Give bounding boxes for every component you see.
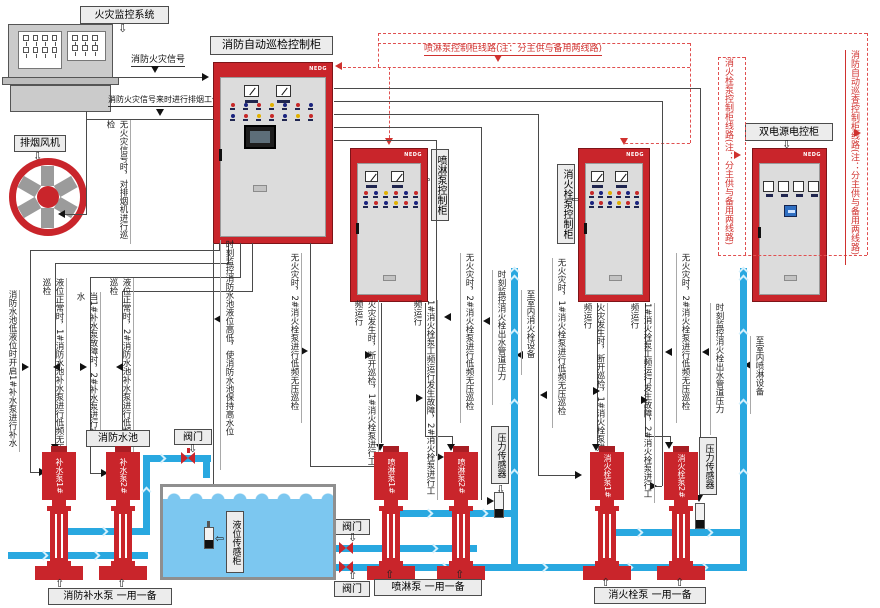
inspection-line-note: 消防自动巡查控制柜线路(注：分主供与备用两线路) (845, 50, 860, 265)
pressure-sensor-icon (494, 492, 504, 518)
pump-spray-1: 喷淋泵1# (367, 446, 415, 580)
hydrant-group-label: 消火栓泵 一用一备 (594, 587, 706, 604)
up-block-arrow-icon: ⇧ (348, 570, 357, 581)
wire (30, 250, 220, 251)
power-dashed-line (625, 143, 690, 144)
door-handle (758, 227, 761, 238)
cabinet-inspection: NEDG (213, 62, 333, 244)
wire (55, 263, 229, 264)
level-sensor-icon (204, 527, 214, 549)
monitor-unit (8, 24, 113, 78)
arrow-icon (335, 62, 342, 70)
wire (86, 111, 87, 215)
power-dashed-line (378, 33, 379, 67)
pump-label: 补水泵1# (55, 458, 63, 494)
arrow-icon (151, 66, 159, 73)
breaker-icon (763, 181, 774, 192)
brand-logo: NEDG (404, 152, 422, 158)
wire (240, 243, 241, 278)
arrow-icon (620, 138, 628, 145)
wire (213, 243, 214, 486)
breaker-row (70, 34, 103, 42)
power-dashed-line (378, 33, 867, 34)
meter-icon (615, 171, 628, 182)
fire-pump-inspection-diagram: 火灾监控系统 ⇩ 排烟风机 ⇩ 消防火灾信号 消防火灾信号来时进行排烟工作 无火… (0, 0, 880, 608)
pressure-sensor-label: 压力传感器 (491, 426, 509, 484)
power-dashed-line (690, 43, 691, 143)
pipe-riser-spray (511, 268, 518, 571)
arrow-icon (665, 348, 672, 356)
makeup-group-label: 消防补水泵 一用一备 (48, 588, 172, 605)
breaker-row (21, 46, 59, 54)
wire (334, 101, 662, 102)
cabinet-spray: NEDG (350, 148, 428, 302)
switch-icon (784, 205, 797, 217)
arrow-icon (444, 313, 451, 321)
meter-icon (244, 85, 259, 97)
vent-icon (383, 275, 396, 281)
annotation: 时刻监控消防水池液位高低，使消防水池保持高水位 (220, 240, 236, 470)
wire (662, 101, 663, 486)
breaker-icon (793, 181, 804, 192)
wire (334, 114, 538, 115)
left-block-arrow-icon: ⇦ (215, 533, 224, 544)
spray-group-label: 喷淋泵 一用一备 (374, 579, 482, 596)
annotation: 至室内消火栓设备 (521, 290, 537, 375)
pump-label: 补水泵2# (119, 458, 127, 494)
annotation: 无火灾时，2#消火栓泵进行低频无压巡检 (287, 253, 302, 423)
wire (64, 214, 87, 215)
level-sensor-label: 液位传感柜 (226, 511, 244, 573)
cabinet-spray-label: 喷淋泵控制柜 (431, 149, 449, 221)
monitor-desk (2, 77, 119, 85)
wire (334, 127, 481, 128)
arrow-icon (22, 363, 29, 371)
meter-icon (391, 171, 404, 182)
annotation: 当1#补水泵故障时，2#补水泵进行补水 (73, 292, 101, 442)
hydrant-line-note: 消火栓泵控制柜线路(注：分主供与备用两线路) (721, 58, 734, 250)
pump-label: 消火栓泵1# (603, 454, 611, 498)
arrow-icon (156, 109, 164, 116)
pump-label: 消火栓泵2# (677, 454, 685, 498)
annotation: 无火灾时，2#消火栓泵进行低频无压巡检 (676, 253, 692, 423)
power-dashed-line (338, 67, 690, 68)
wire (381, 303, 382, 443)
pump-label: 喷淋泵2# (457, 458, 465, 494)
wire (700, 88, 701, 495)
water (163, 499, 333, 577)
brand-logo: NEDG (803, 152, 821, 158)
annotation: 1#消火栓泵工频运行发生故障，2#消火栓泵进行工频运行 (627, 303, 655, 503)
door-handle (356, 223, 359, 234)
vent-icon (253, 185, 267, 192)
annotation: 液位正常时，1#消防水池补水泵进行低频无压巡检 (39, 278, 67, 454)
fan-inspect-note: 无火灾信号时，对排烟机进行巡检 (103, 120, 131, 244)
smoke-fan-icon (9, 158, 87, 236)
arrow-icon (487, 497, 494, 505)
power-dashed-line (718, 57, 719, 255)
annotation: 至室内喷淋设备 (750, 336, 766, 414)
wire (113, 77, 205, 78)
fire-signal-label: 消防火灾信号 (131, 52, 185, 67)
wire (30, 250, 31, 472)
brand-logo: NEDG (309, 66, 327, 72)
pump-label: 喷淋泵1# (387, 458, 395, 494)
annotation: 液位正常时，2#消防水池补水泵进行低频无压巡检 (106, 278, 134, 454)
power-dashed-line (389, 67, 390, 143)
pump-hydrant-1: 消火栓泵1# (583, 446, 631, 580)
down-block-arrow-icon: ⇩ (348, 532, 357, 543)
valve-label: 阀门 (334, 581, 370, 597)
meter-icon (365, 171, 378, 182)
display-screen (244, 125, 276, 149)
cabinet-dual-power: NEDG (752, 148, 827, 302)
power-dashed-line (745, 57, 746, 255)
wire (252, 243, 253, 292)
breaker-row (70, 44, 103, 52)
arrow-icon (483, 317, 490, 325)
arrow-icon (702, 348, 709, 356)
arrow-icon (734, 151, 741, 159)
pipe (203, 462, 210, 478)
annotation: 时刻监控消火栓出水管道压力 (710, 303, 726, 435)
down-block-arrow-icon: ⇩ (188, 443, 197, 454)
wire (334, 140, 436, 141)
wire (86, 119, 214, 120)
pipe-riser-hydrant (740, 268, 747, 571)
fire-water-tank (160, 484, 336, 580)
annotation: 时刻监控消火栓出水管道压力 (492, 270, 508, 405)
annotation: 消防水池低液位时开启1#补水泵进行补水 (5, 290, 20, 452)
wire (538, 114, 539, 475)
monitor-panel (67, 31, 106, 61)
pump-makeup-2: 补水泵2# (99, 446, 147, 580)
arrow-icon (58, 210, 65, 218)
smoke-work-label: 消防火灾信号来时进行排烟工作 (108, 94, 220, 107)
arrow-icon (301, 347, 308, 355)
vent-icon (784, 275, 797, 281)
annotation: 无火灾时，1#消火栓泵进行低频无压巡检 (552, 258, 568, 428)
wire (310, 243, 311, 466)
pump-spray-2: 喷淋泵2# (437, 446, 485, 580)
meter-icon (591, 171, 604, 182)
vent-icon (609, 275, 622, 281)
wire (334, 88, 700, 89)
brand-logo: NEDG (626, 152, 644, 158)
spray-line-note: 喷淋泵控制柜线路(注：分主供与备用两线路) (424, 41, 602, 56)
annotation: 无火灾时，2#消火栓泵进行低频无压巡检 (460, 253, 476, 423)
down-block-arrow-icon: ⇩ (118, 23, 127, 34)
cabinet-door (220, 77, 326, 237)
breaker-icon (778, 181, 789, 192)
arrow-icon (202, 73, 209, 81)
pump-makeup-1: 补水泵1# (35, 446, 83, 580)
meter-icon (276, 85, 291, 97)
cabinet-inspection-label: 消防自动巡检控制柜 (210, 36, 333, 55)
breaker-row (21, 34, 59, 42)
wire (481, 127, 482, 500)
arrow-icon (540, 391, 547, 399)
water-wave (163, 493, 333, 505)
arrow-icon (494, 55, 502, 62)
door-handle (219, 149, 222, 161)
monitor-base (10, 85, 111, 112)
pump-hydrant-2: 消火栓泵2# (657, 446, 705, 580)
cabinet-hydrant: NEDG (578, 148, 650, 302)
wire (452, 436, 453, 444)
door-handle (584, 223, 587, 234)
pipe (143, 455, 211, 462)
breaker-icon (808, 181, 819, 192)
wire (538, 475, 576, 476)
power-dashed-line (867, 33, 868, 255)
monitor-panel (18, 31, 62, 69)
